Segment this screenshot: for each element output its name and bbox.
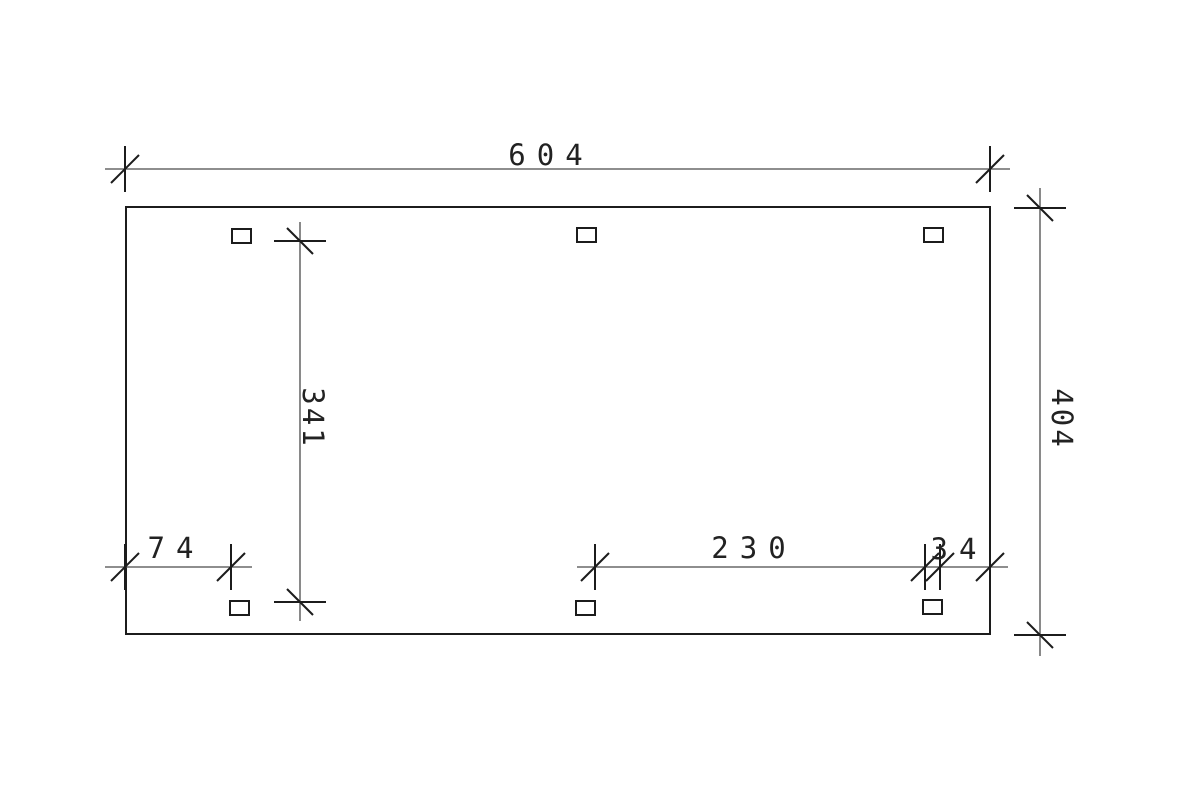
- dim-bottom-right: 34: [926, 532, 1004, 590]
- dim-label-top-width: 604: [508, 138, 593, 172]
- dim-label-right-height: 404: [1045, 388, 1079, 449]
- dim-bottom-left: 74: [105, 531, 252, 590]
- dim-label-inner-height: 341: [296, 387, 330, 448]
- dim-right-height: 404: [1014, 188, 1079, 656]
- dim-label-bottom-right: 34: [931, 532, 988, 566]
- dim-top-width: 604: [105, 138, 1010, 192]
- post-marker-top-middle: [577, 228, 596, 242]
- dim-inner-height: 341: [274, 222, 330, 621]
- post-marker-top-left: [232, 229, 251, 243]
- drawing-canvas: 604 404 341: [0, 0, 1200, 800]
- plan-outline: [126, 207, 990, 634]
- post-marker-bottom-right: [923, 600, 942, 614]
- plan-geometry: [126, 207, 990, 634]
- dim-label-bottom-left: 74: [148, 531, 205, 565]
- dim-label-bottom-middle: 230: [711, 531, 796, 565]
- post-marker-top-right: [924, 228, 943, 242]
- post-marker-bottom-left: [230, 601, 249, 615]
- post-marker-bottom-middle: [576, 601, 595, 615]
- carport-plan-drawing: 604 404 341: [0, 0, 1200, 800]
